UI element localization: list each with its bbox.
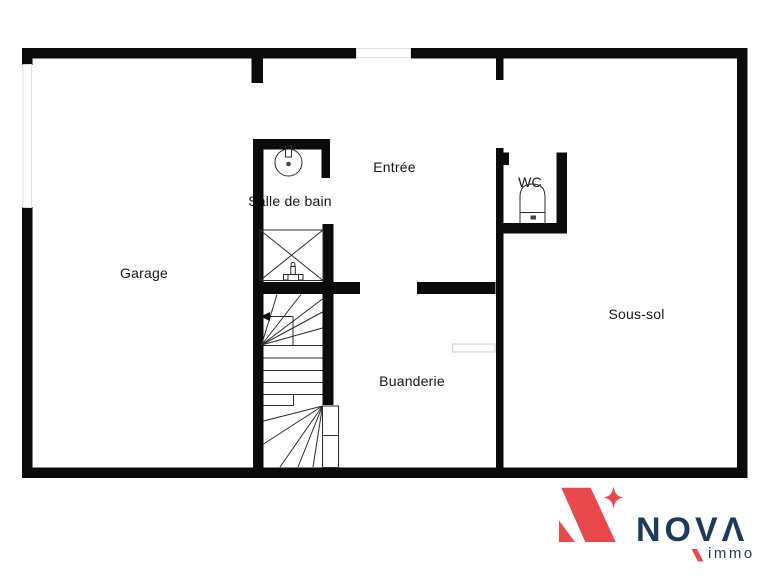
floor-plan-canvas: Garage Salle de bain Entrée WC Sous-sol …	[0, 0, 768, 576]
window-opening-icon	[357, 49, 411, 58]
shower-icon	[260, 230, 323, 281]
logo-tagline-text: immo	[708, 546, 755, 562]
room-label-entree: Entrée	[373, 159, 415, 175]
stairs-direction-arrow	[261, 312, 271, 321]
window-openings	[23, 49, 411, 208]
sink-icon	[275, 146, 302, 176]
room-label-sous-sol: Sous-sol	[608, 306, 664, 322]
logo-triangle	[559, 521, 575, 543]
garage-door-opening-icon	[23, 65, 32, 208]
staircase-icon	[261, 295, 339, 468]
logo-tagline-slash-icon	[692, 549, 704, 562]
logo-brand-text: NOVΛ	[636, 513, 748, 547]
room-label-wc: WC	[518, 174, 542, 190]
room-label-salle-de-bain: Salle de bain	[248, 193, 332, 209]
closet-icon	[453, 344, 496, 352]
logo-diagonal-stroke	[561, 488, 615, 542]
room-label-buanderie: Buanderie	[379, 373, 445, 389]
floor-plan-drawing	[0, 0, 768, 576]
room-label-garage: Garage	[120, 265, 168, 281]
walls-layer	[22, 48, 748, 478]
sparkle-icon	[604, 487, 624, 509]
